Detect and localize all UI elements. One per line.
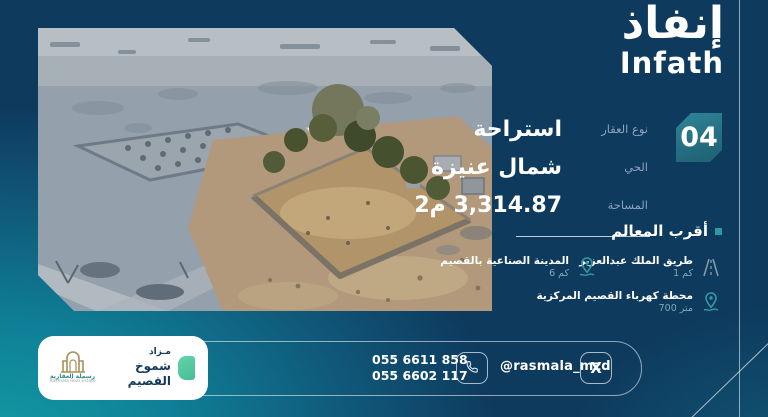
property-type-value: استراحة	[473, 117, 562, 142]
phone-icon-box	[456, 352, 488, 384]
auction-logo-icon	[178, 356, 195, 380]
brand-logo: إنفاذ Infath	[620, 2, 724, 78]
district-label: الحي	[576, 160, 648, 174]
twitter-handle: @rasmala_mzd	[500, 359, 578, 374]
landmarks-divider	[516, 236, 650, 237]
auction-logo-line2: شموخ القصيم	[97, 359, 171, 389]
x-icon: X	[590, 359, 602, 377]
road-icon	[700, 256, 722, 278]
phone-numbers: 055 6611 858 055 6602 117	[372, 352, 448, 384]
diagonal-accent-line	[682, 334, 768, 417]
phone-number-2: 055 6602 117	[372, 368, 448, 384]
map-pin-icon	[576, 256, 598, 278]
x-icon-box: X	[580, 352, 612, 384]
landmark-item-industrial-city: المدينة الصناعية بالقصيم 6 كم	[440, 255, 598, 280]
auction-card: إنفاذ Infath 04 نوع العقار استراحة الحي …	[0, 0, 768, 417]
map-pin-icon	[700, 291, 722, 313]
landmark-name: المدينة الصناعية بالقصيم	[440, 255, 569, 268]
auction-logo: مـزاد شموخ القصيم	[97, 347, 195, 388]
property-type-row: نوع العقار استراحة	[473, 112, 648, 146]
landmarks-bullet	[715, 228, 722, 235]
rasmala-logo: رسملة العقارية Rasmala Real Estate	[48, 351, 97, 386]
landmarks-title: أقرب المعالم	[611, 222, 708, 240]
area-label: المساحة	[576, 198, 648, 212]
aerial-photo-illustration	[38, 28, 492, 311]
landmark-item-power-station: محطة كهرباء القصيم المركزية 700 متر	[537, 290, 722, 315]
phone-number-1: 055 6611 858	[372, 352, 448, 368]
vertical-divider-line	[739, 0, 740, 417]
footer-brand-pill: مـزاد شموخ القصيم رسملة العقارية Rasmala…	[38, 336, 208, 400]
landmarks-header: أقرب المعالم	[611, 222, 722, 240]
district-row: الحي شمال عنيزة	[431, 150, 648, 184]
phone-icon	[464, 360, 480, 376]
rasmala-name-latin: Rasmala Real Estate	[48, 380, 97, 385]
brand-name-latin: Infath	[620, 49, 724, 78]
lot-number-badge: 04	[676, 113, 722, 162]
property-aerial-photo	[38, 28, 492, 311]
auction-logo-line1: مـزاد	[97, 347, 171, 358]
brand-name-arabic: إنفاذ	[620, 2, 724, 46]
area-row: المساحة 3,314.87 م2	[414, 188, 648, 222]
landmark-item-king-abdulaziz-road: طريق الملك عبدالعزيز 1 كم	[579, 255, 722, 280]
landmark-distance: 6 كم	[440, 268, 569, 280]
landmark-distance: 700 متر	[537, 303, 693, 315]
area-value: 3,314.87 م2	[414, 193, 562, 218]
district-value: شمال عنيزة	[431, 155, 562, 180]
landmark-name: محطة كهرباء القصيم المركزية	[537, 290, 693, 303]
property-type-label: نوع العقار	[576, 122, 648, 136]
building-icon	[58, 351, 88, 373]
